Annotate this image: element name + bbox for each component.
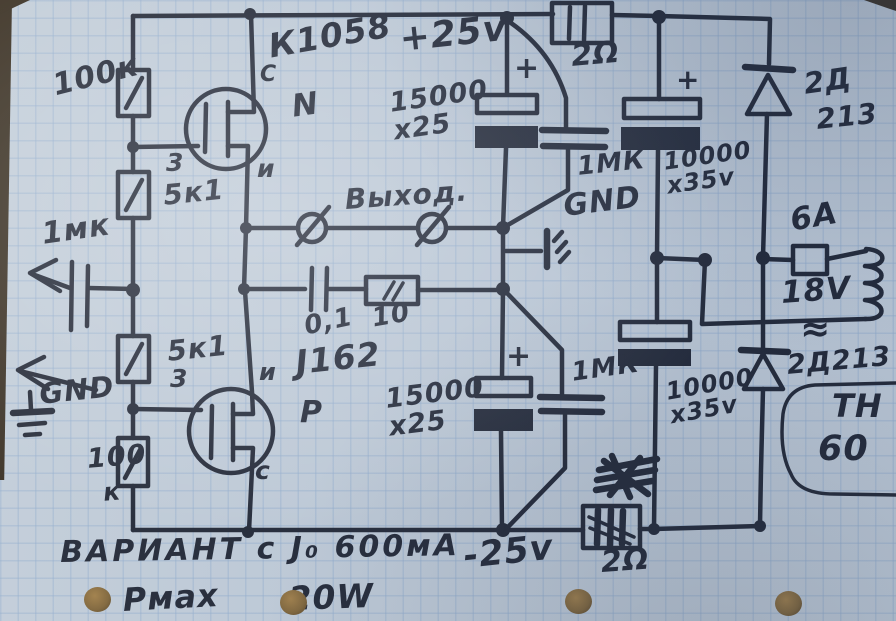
cap-10000-bottom-symbol [620,322,690,340]
schematic-photo: 100к 5к1 1мк GND 5к1 100 к К1058 N С 3 и… [0,0,896,621]
label-k1058-polarity: N [290,88,321,123]
label-cap-10000-top-plus: + [676,66,700,95]
label-diode1-line1: 2Д [802,63,854,99]
label-k1058-drain: С [260,64,277,86]
label-k1058-source: и [257,156,276,182]
label-j162-polarity: P [300,398,323,429]
label-resistor-100k-bottom-unit: к [102,478,122,505]
label-diode1-line2: 213 [815,100,879,135]
label-cap-1mk-top: 1МК [576,147,647,181]
punch-hole [280,590,307,615]
label-resistor-5k1-top: 5к1 [162,176,226,211]
cap-10000-top-symbol [624,99,700,118]
punch-hole [565,589,592,614]
ground-icon [554,232,569,262]
label-resistor-5k1-bottom: 5к1 [166,332,230,367]
scribbled-out-component [596,456,657,497]
ground-icon [19,423,45,435]
label-resistor-2ohm-bottom: 2Ω [600,545,650,579]
input-coupling [30,260,133,330]
label-cap-15000-bottom-plus: + [506,342,532,373]
mosfet-j162-symbol [133,291,273,531]
label-j162-drain: с [255,458,271,484]
label-transistor-j162: J162 [294,337,382,379]
label-resistor-100k-bottom: 100 [86,441,148,474]
rail-filter-column [474,20,606,530]
label-fuse-6a: 6А [788,198,840,237]
label-voltage-negative: -25v [462,531,555,576]
label-j162-source: и [259,360,277,384]
caption-variant: ВАРИАНТ с J₀ 600мА [60,531,460,569]
label-transformer-type: ТН [832,390,883,423]
label-ac-tilde: ≈ [800,312,831,349]
label-resistor-2ohm-top: 2Ω [570,38,621,73]
caption-pmax: Рмах [122,579,219,617]
label-cap-15000-top-plus: + [514,54,540,85]
label-j162-gate: 3 [170,366,188,392]
label-gnd-input: GND [38,372,116,409]
punch-hole [84,587,111,612]
label-transformer-number: 60 [818,432,869,468]
input-arrow-icon [30,260,60,291]
label-winding-18v: 18V [780,273,852,309]
punch-hole [775,591,802,616]
label-k1058-gate: 3 [166,150,184,176]
transformer-winding-symbol [865,249,882,319]
label-zobel-resistor: 10 [370,299,412,332]
fuse-6a-symbol [763,246,866,274]
